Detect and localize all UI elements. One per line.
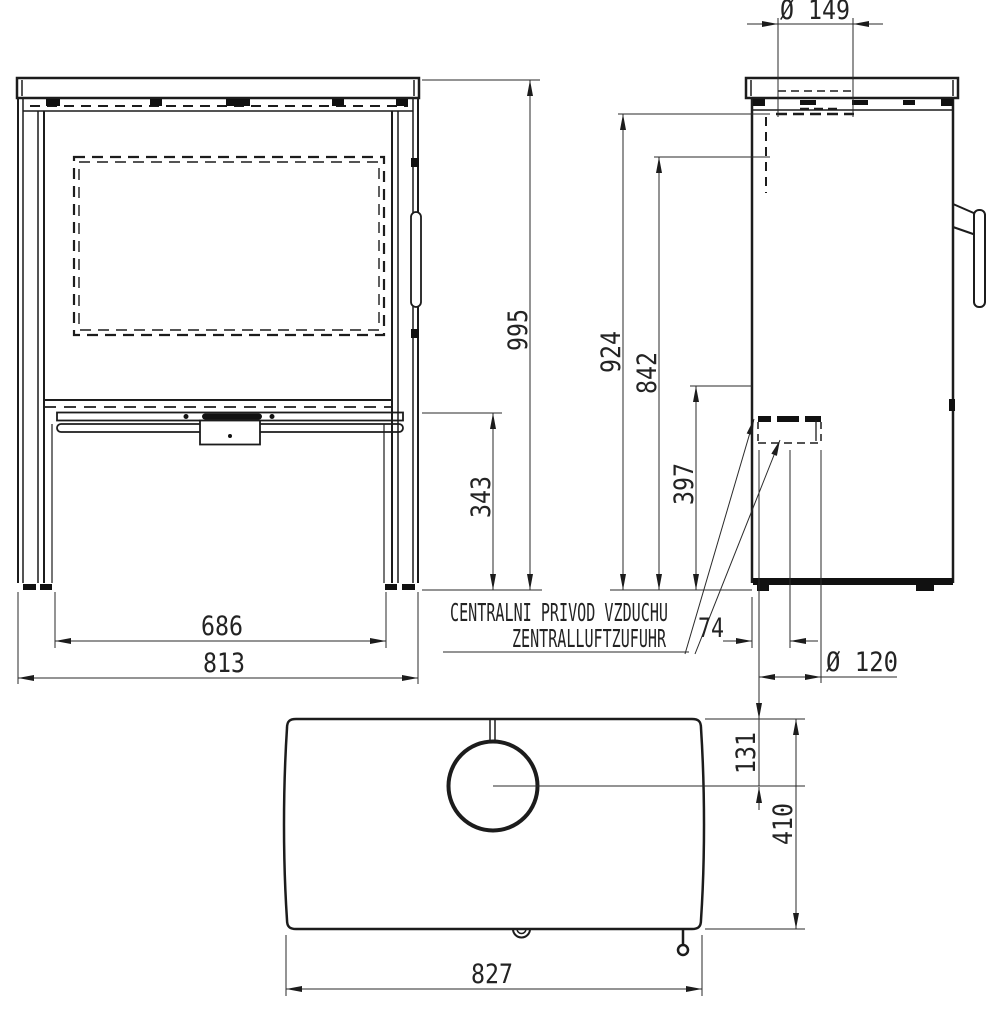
dim-rear-flue-center-height: 842 <box>632 352 663 394</box>
stove-technical-drawing: 995 343 686 813 <box>0 0 999 1029</box>
dim-base-height: 343 <box>466 476 497 518</box>
air-supply-label-cz: CENTRALNI PRIVOD VZDUCHU <box>450 598 668 627</box>
side-flue-collar-hidden <box>766 91 854 193</box>
front-ash-drawer <box>44 400 403 445</box>
side-feet <box>757 585 934 591</box>
drawer-handle-plate <box>200 421 260 445</box>
dim-air-inlet-back-offset: 74 <box>698 613 724 644</box>
side-door-handle <box>953 204 985 307</box>
dim-top-width: 827 <box>471 959 513 990</box>
side-air-inlet-hidden <box>758 416 821 443</box>
side-view <box>746 78 985 591</box>
top-view <box>284 719 704 955</box>
dim-overall-height: 995 <box>503 309 534 351</box>
dim-inner-width: 686 <box>201 611 243 642</box>
side-base <box>753 578 953 585</box>
dim-flue-center-from-back: 131 <box>731 732 762 774</box>
drawing-sheet: 995 343 686 813 <box>0 0 999 1029</box>
front-vent-band <box>23 99 413 111</box>
top-dimensions: 131 410 827 <box>286 683 805 996</box>
dim-air-inlet-height: 397 <box>669 463 700 505</box>
air-supply-label-de: ZENTRALLUFTZUFUHR <box>512 624 667 653</box>
drawer-slot <box>202 414 262 420</box>
front-glass-panel <box>74 157 384 335</box>
dim-overall-width: 813 <box>203 648 245 679</box>
front-dimensions: 995 343 686 813 <box>18 80 542 684</box>
front-top-plate <box>17 78 419 98</box>
front-feet <box>23 584 415 590</box>
front-side-columns <box>18 98 418 583</box>
top-handle-knob <box>678 930 688 955</box>
dim-air-inlet-diameter: Ø 120 <box>826 647 898 678</box>
side-hinge-mark <box>949 399 955 411</box>
dim-flue-diameter: Ø 149 <box>780 0 850 26</box>
dim-depth: 410 <box>768 803 799 845</box>
dim-rear-flue-height: 924 <box>596 331 627 373</box>
front-view <box>17 78 421 590</box>
